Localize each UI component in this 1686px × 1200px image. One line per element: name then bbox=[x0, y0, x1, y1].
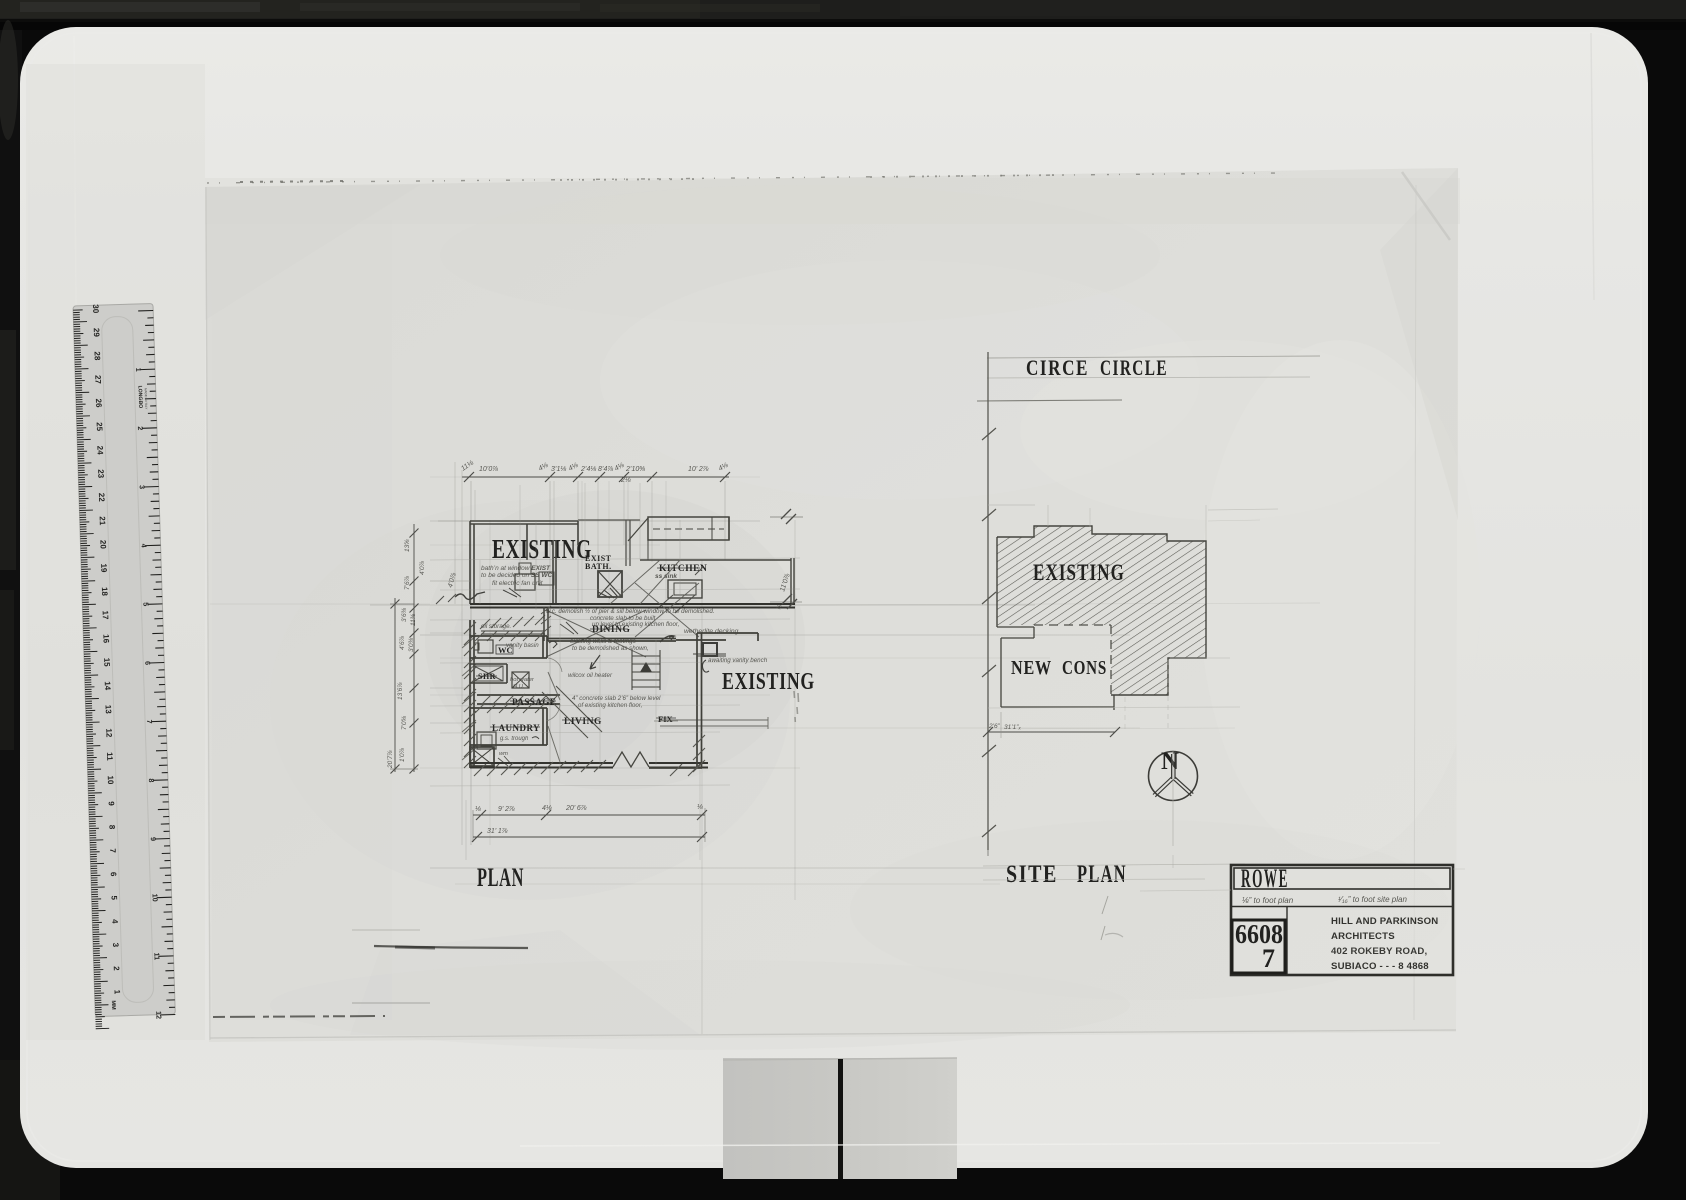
svg-text:ARCHITECTS: ARCHITECTS bbox=[1331, 931, 1395, 942]
svg-text:3: 3 bbox=[138, 485, 147, 489]
svg-text:7: 7 bbox=[1262, 944, 1275, 973]
svg-text:4’0⅞: 4’0⅞ bbox=[419, 560, 426, 575]
svg-text:to be decided on SS WC.: to be decided on SS WC. bbox=[481, 572, 554, 579]
svg-text:3’0⅜: 3’0⅜ bbox=[408, 637, 415, 652]
svg-text:3’1⅛: 3’1⅛ bbox=[551, 466, 566, 473]
svg-text:EXISTING: EXISTING bbox=[722, 669, 815, 695]
svg-text:9: 9 bbox=[107, 801, 116, 806]
svg-text:1: 1 bbox=[134, 368, 143, 372]
svg-text:CONS: CONS bbox=[1062, 657, 1107, 679]
svg-text:4: 4 bbox=[140, 544, 149, 548]
svg-text:2: 2 bbox=[112, 966, 121, 971]
svg-text:hot water: hot water bbox=[510, 677, 535, 683]
svg-text:11: 11 bbox=[105, 752, 114, 761]
svg-text:17: 17 bbox=[101, 610, 110, 620]
svg-text:402 ROKEBY ROAD,: 402 ROKEBY ROAD, bbox=[1331, 946, 1427, 957]
svg-text:8: 8 bbox=[147, 778, 156, 782]
svg-text:2’10⅝: 2’10⅝ bbox=[625, 466, 645, 473]
svg-text:⅛” to foot plan: ⅛” to foot plan bbox=[1242, 896, 1294, 905]
svg-text:10’0⅞: 10’0⅞ bbox=[479, 466, 498, 473]
svg-text:7: 7 bbox=[108, 848, 117, 853]
svg-text:BATH.: BATH. bbox=[585, 562, 612, 571]
svg-text:LONGBO: LONGBO bbox=[137, 385, 144, 408]
svg-text:NEW: NEW bbox=[1011, 657, 1052, 679]
svg-text:6608: 6608 bbox=[1235, 919, 1283, 949]
svg-text:9: 9 bbox=[149, 837, 158, 841]
svg-text:18: 18 bbox=[100, 587, 109, 597]
svg-text:CIRCE: CIRCE bbox=[1026, 355, 1089, 380]
svg-text:12: 12 bbox=[104, 728, 113, 738]
svg-text:g.s. trough: g.s. trough bbox=[500, 736, 529, 742]
svg-text:5: 5 bbox=[110, 895, 119, 900]
svg-text:7’0⅝: 7’0⅝ bbox=[401, 715, 408, 730]
svg-text:4” concrete slab 2’6” belo: 4” concrete slab 2’6” below level bbox=[572, 695, 661, 702]
svg-text:13’6⅞: 13’6⅞ bbox=[397, 682, 404, 700]
svg-text:19: 19 bbox=[99, 563, 108, 573]
svg-text:14: 14 bbox=[103, 681, 112, 691]
svg-text:FIX: FIX bbox=[658, 714, 674, 724]
svg-text:4’6⅞: 4’6⅞ bbox=[399, 635, 406, 650]
svg-text:H.U.: H.U. bbox=[513, 684, 525, 690]
svg-text:LIVING: LIVING bbox=[564, 717, 602, 727]
svg-text:16: 16 bbox=[101, 634, 110, 644]
svg-text:vanity basin: vanity basin bbox=[506, 642, 539, 649]
svg-text:11: 11 bbox=[152, 952, 161, 960]
svg-text:bath’n at window EXIST: bath’n at window EXIST bbox=[481, 565, 551, 572]
svg-text:w.c. demolish ½ of pier &: w.c. demolish ½ of pier & sill below win… bbox=[546, 608, 715, 615]
svg-text:13⅝: 13⅝ bbox=[404, 539, 411, 552]
svg-text:ss sink: ss sink bbox=[655, 573, 677, 580]
svg-text:30: 30 bbox=[91, 304, 100, 314]
svg-text:2’6”: 2’6” bbox=[988, 723, 1001, 730]
svg-text:21: 21 bbox=[98, 516, 107, 526]
svg-text:11⅜: 11⅜ bbox=[410, 613, 417, 626]
svg-text:1: 1 bbox=[113, 990, 122, 995]
svg-text:to be demolished as shown,: to be demolished as shown, bbox=[572, 645, 649, 652]
svg-text:6: 6 bbox=[109, 872, 118, 877]
svg-text:⅛: ⅛ bbox=[475, 806, 481, 813]
svg-text:28: 28 bbox=[92, 351, 101, 361]
svg-text:4⅛: 4⅛ bbox=[542, 805, 552, 812]
svg-text:6: 6 bbox=[143, 661, 152, 665]
svg-text:2’4⅛: 2’4⅛ bbox=[580, 466, 596, 473]
svg-text:10’ 2⅞: 10’ 2⅞ bbox=[688, 466, 709, 473]
svg-text:EXISTING: EXISTING bbox=[1033, 560, 1125, 585]
svg-text:20: 20 bbox=[98, 540, 107, 550]
svg-text:1’0⅞: 1’0⅞ bbox=[399, 747, 406, 762]
svg-text:12: 12 bbox=[154, 1011, 163, 1019]
svg-text:3’6⅜: 3’6⅜ bbox=[401, 607, 408, 622]
svg-text:wilcox oil heater: wilcox oil heater bbox=[568, 672, 613, 679]
svg-text:LAUNDRY: LAUNDRY bbox=[492, 723, 540, 733]
svg-text:22: 22 bbox=[97, 493, 106, 503]
svg-text:10: 10 bbox=[151, 894, 160, 902]
svg-text:3: 3 bbox=[111, 943, 120, 948]
svg-text:24: 24 bbox=[95, 446, 104, 456]
svg-text:27: 27 bbox=[93, 375, 102, 385]
svg-text:MADE IN ITALY: MADE IN ITALY bbox=[144, 388, 149, 409]
svg-text:¹⁄₁₆” to foot site plan: ¹⁄₁₆” to foot site plan bbox=[1338, 895, 1408, 904]
svg-text:26: 26 bbox=[94, 398, 103, 408]
svg-text:awaiting vanity bench: awaiting vanity bench bbox=[708, 657, 768, 664]
svg-text:10: 10 bbox=[106, 775, 115, 785]
svg-text:20’ 6⅞: 20’ 6⅞ bbox=[565, 805, 587, 812]
svg-text:29: 29 bbox=[92, 328, 101, 338]
svg-text:8: 8 bbox=[107, 825, 116, 830]
svg-text:15: 15 bbox=[102, 658, 111, 668]
svg-text:2⅛: 2⅛ bbox=[620, 477, 631, 484]
svg-text:7’6⅞: 7’6⅞ bbox=[404, 575, 411, 590]
svg-text:25: 25 bbox=[95, 422, 104, 432]
svg-text:20’7⅞: 20’7⅞ bbox=[387, 750, 394, 769]
svg-text:SHR: SHR bbox=[478, 672, 496, 681]
svg-text:5: 5 bbox=[141, 602, 150, 606]
svg-text:SITE: SITE bbox=[1006, 861, 1058, 888]
svg-text:N: N bbox=[1161, 748, 1179, 775]
svg-text:CIRCLE: CIRCLE bbox=[1100, 355, 1168, 380]
svg-text:23: 23 bbox=[96, 469, 105, 479]
svg-text:PLAN: PLAN bbox=[1077, 861, 1127, 888]
svg-text:MM: MM bbox=[110, 1000, 116, 1010]
svg-text:wetherlite decking: wetherlite decking bbox=[684, 628, 739, 635]
svg-text:8’4⅞: 8’4⅞ bbox=[598, 466, 613, 473]
svg-text:9’ 2⅞: 9’ 2⅞ bbox=[498, 806, 515, 813]
svg-text:31’1”ₓ: 31’1”ₓ bbox=[1004, 724, 1021, 731]
svg-text:7: 7 bbox=[145, 720, 154, 724]
svg-text:ROWE: ROWE bbox=[1241, 864, 1289, 893]
svg-text:HILL AND PARKINSON: HILL AND PARKINSON bbox=[1331, 916, 1438, 927]
svg-text:13: 13 bbox=[104, 705, 113, 715]
svg-text:DINING: DINING bbox=[592, 625, 630, 635]
svg-text:PLAN: PLAN bbox=[477, 863, 524, 892]
svg-text:SUBIACO - - - 8 4868: SUBIACO - - - 8 4868 bbox=[1331, 961, 1429, 972]
svg-text:31’ 1⅞: 31’ 1⅞ bbox=[487, 828, 508, 835]
svg-text:wm: wm bbox=[499, 751, 508, 757]
svg-text:4: 4 bbox=[110, 919, 119, 924]
svg-text:2: 2 bbox=[136, 426, 145, 430]
